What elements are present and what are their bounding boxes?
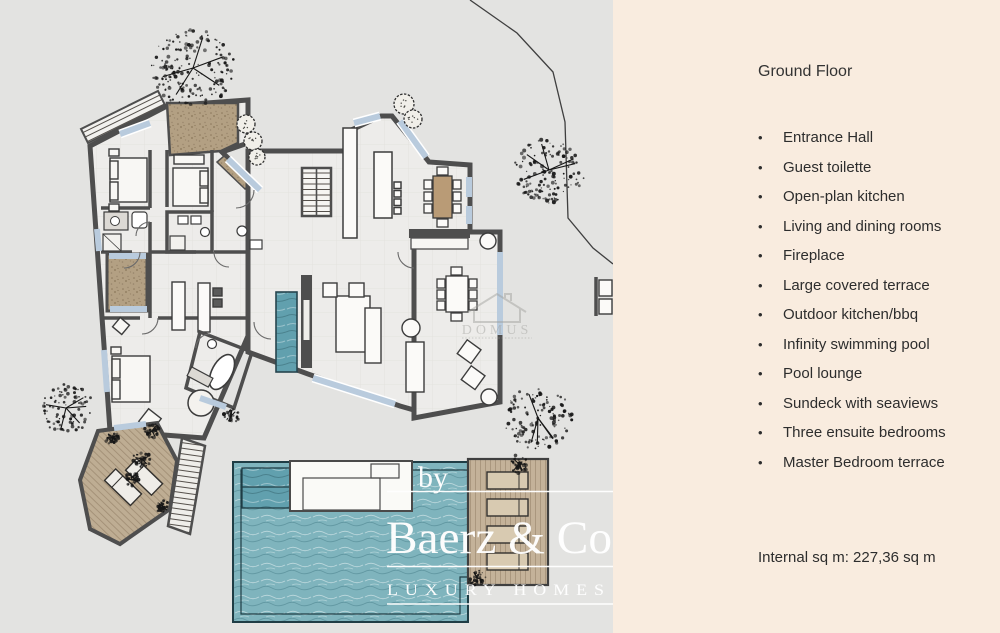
shrub-icon <box>249 149 265 165</box>
bullet-icon: • <box>758 455 783 470</box>
pool-lap-lane <box>242 468 290 508</box>
floorplan-page: DOMUS by Baerz & Co LUXURY HOMES Ground … <box>0 0 1000 633</box>
kitchen-island <box>374 152 392 218</box>
bullet-icon: • <box>758 307 783 322</box>
domus-watermark-text: DOMUS <box>462 323 533 338</box>
list-item: •Guest toilette <box>758 153 946 183</box>
bed-2 <box>173 155 208 206</box>
feature-list: •Entrance Hall •Guest toilette •Open-pla… <box>758 123 946 477</box>
list-item: •Pool lounge <box>758 359 946 389</box>
shrub-icon <box>404 110 422 128</box>
watermark-tagline: LUXURY HOMES <box>387 582 611 599</box>
entry-courtyard <box>167 103 238 155</box>
master-terrace-deck <box>80 423 205 544</box>
watermark-by: by <box>418 461 448 494</box>
water-feature <box>276 292 297 372</box>
shrub-icon <box>244 132 262 150</box>
list-item: •Three ensuite bedrooms <box>758 418 946 448</box>
bullet-icon: • <box>758 366 783 381</box>
bullet-icon: • <box>758 425 783 440</box>
staircase <box>302 168 331 216</box>
bullet-icon: • <box>758 396 783 411</box>
fireplace-opening <box>304 300 310 340</box>
bullet-icon: • <box>758 248 783 263</box>
terrace-beam <box>409 229 470 238</box>
page-title: Ground Floor <box>758 63 852 81</box>
bullet-icon: • <box>758 337 783 352</box>
floor-plan-drawing: DOMUS by Baerz & Co LUXURY HOMES <box>0 0 613 633</box>
watermark-brand: Baerz & Co <box>386 512 612 564</box>
outdoor-kitchen <box>596 277 612 316</box>
list-item: •Master Bedroom terrace <box>758 448 946 478</box>
interior-patio <box>107 254 147 311</box>
kitchen-counter <box>343 128 357 238</box>
bullet-icon: • <box>758 189 783 204</box>
list-item: •Infinity swimming pool <box>758 330 946 360</box>
list-item: •Open-plan kitchen <box>758 182 946 212</box>
list-item: •Large covered terrace <box>758 271 946 301</box>
list-item: •Fireplace <box>758 241 946 271</box>
list-item: •Sundeck with seaviews <box>758 389 946 419</box>
bullet-icon: • <box>758 219 783 234</box>
internal-area-text: Internal sq m: 227,36 sq m <box>758 549 936 566</box>
list-item: •Outdoor kitchen/bbq <box>758 300 946 330</box>
list-item: •Entrance Hall <box>758 123 946 153</box>
bed-1 <box>109 149 147 211</box>
bullet-icon: • <box>758 130 783 145</box>
shrub-icon <box>237 115 255 133</box>
bullet-icon: • <box>758 278 783 293</box>
bullet-icon: • <box>758 160 783 175</box>
pool-platform <box>290 461 412 511</box>
info-panel: Ground Floor •Entrance Hall •Guest toile… <box>613 0 1000 633</box>
list-item: •Living and dining rooms <box>758 212 946 242</box>
